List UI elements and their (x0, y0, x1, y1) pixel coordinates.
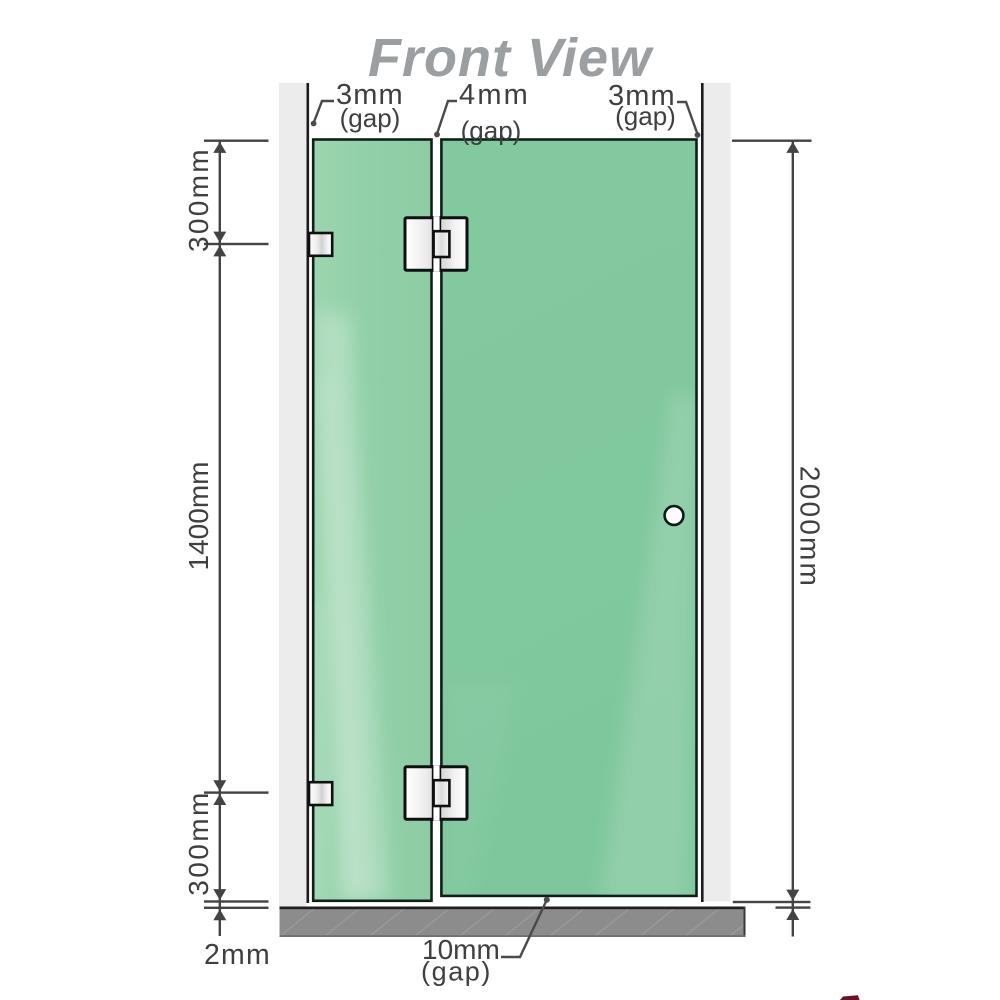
svg-text:(gap): (gap) (421, 957, 492, 987)
svg-text:4mm: 4mm (459, 79, 530, 111)
svg-text:300mm: 300mm (183, 790, 214, 895)
svg-text:(gap): (gap) (615, 101, 676, 131)
svg-text:2000mm: 2000mm (795, 466, 826, 588)
svg-text:(gap): (gap) (461, 116, 522, 146)
svg-text:300mm: 300mm (183, 147, 214, 252)
svg-text:(gap): (gap) (340, 103, 401, 133)
svg-text:1400mm: 1400mm (183, 462, 214, 571)
svg-text:2mm: 2mm (204, 939, 271, 971)
